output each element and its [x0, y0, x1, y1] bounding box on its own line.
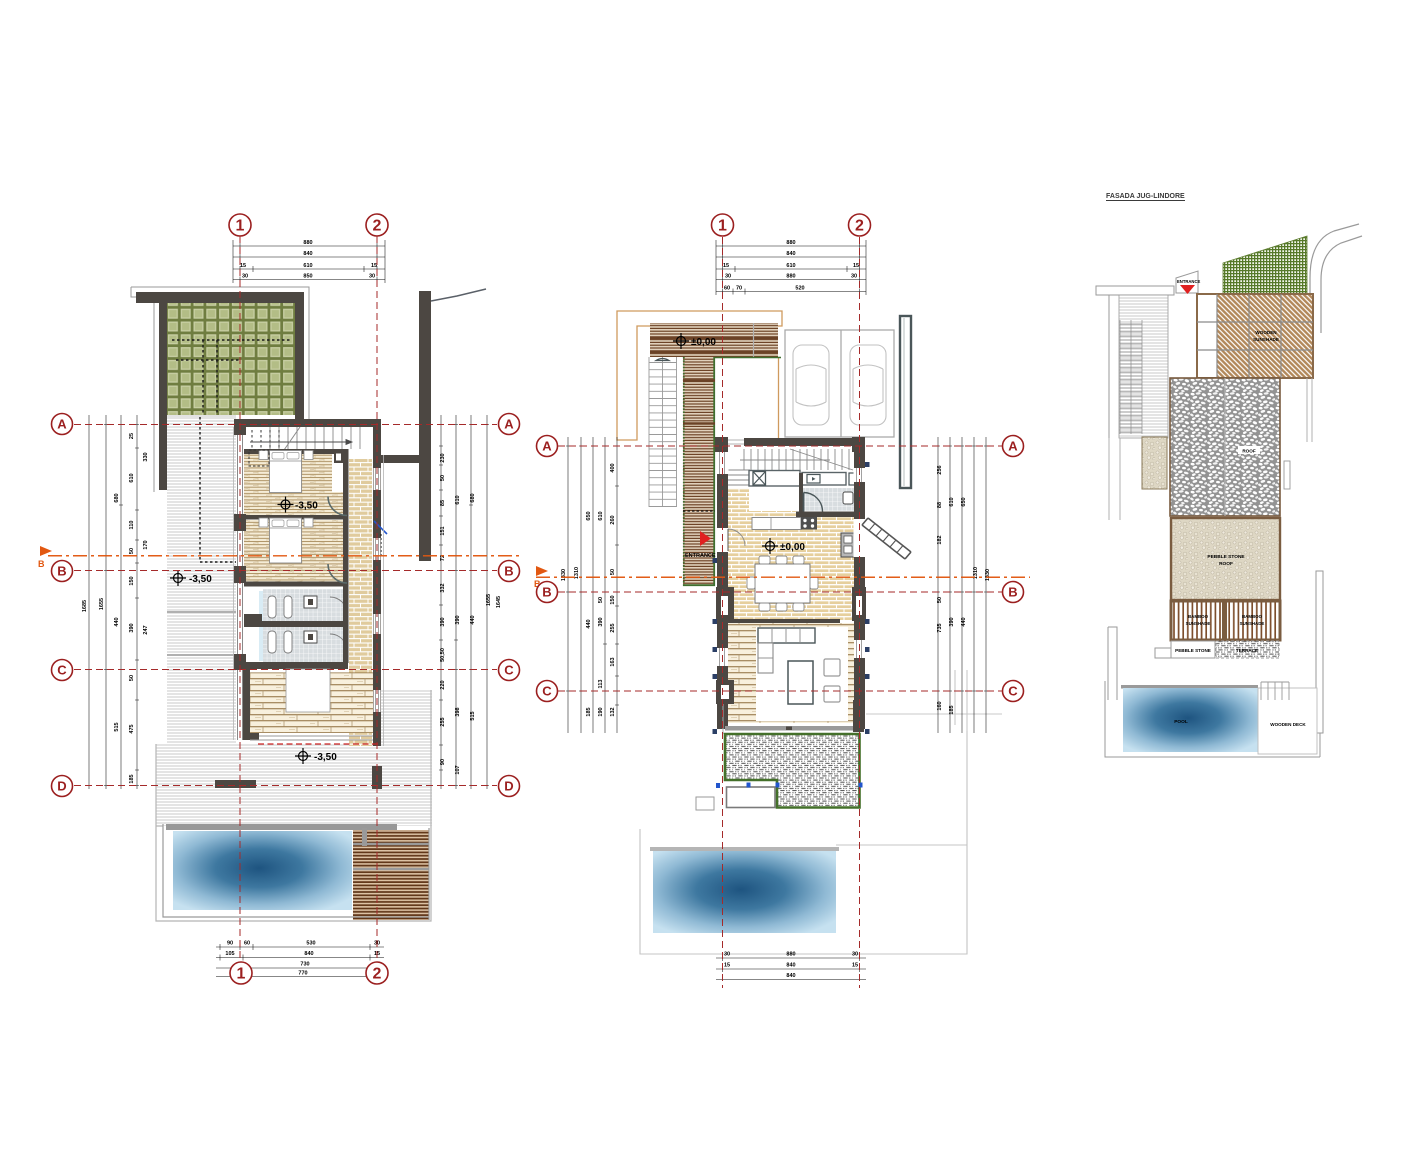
svg-text:1645: 1645 — [496, 596, 502, 608]
svg-text:ROOF: ROOF — [1242, 449, 1255, 454]
svg-text:15: 15 — [723, 263, 729, 269]
svg-text:50,50: 50,50 — [440, 648, 446, 662]
svg-text:256: 256 — [937, 465, 943, 474]
svg-text:610: 610 — [598, 511, 604, 520]
svg-text:770: 770 — [298, 971, 307, 977]
svg-text:WOODEN DECK: WOODEN DECK — [1270, 722, 1306, 727]
svg-text:-3,50: -3,50 — [295, 501, 318, 512]
svg-text:C: C — [542, 684, 552, 699]
svg-text:85: 85 — [440, 500, 446, 506]
svg-text:2: 2 — [855, 218, 864, 235]
svg-text:TERRACE: TERRACE — [1236, 648, 1258, 653]
svg-text:680: 680 — [114, 493, 120, 502]
svg-text:185: 185 — [129, 774, 135, 783]
svg-text:15: 15 — [240, 263, 246, 269]
svg-text:C: C — [504, 663, 514, 678]
svg-text:520: 520 — [795, 286, 804, 292]
svg-text:850: 850 — [303, 274, 312, 280]
svg-text:840: 840 — [786, 963, 795, 969]
svg-text:B: B — [1008, 585, 1017, 600]
svg-text:PEBBLE STONE: PEBBLE STONE — [1207, 554, 1245, 560]
svg-text:50: 50 — [440, 475, 446, 481]
svg-text:260: 260 — [610, 515, 616, 524]
svg-text:440: 440 — [586, 619, 592, 628]
svg-text:30: 30 — [852, 952, 858, 958]
svg-text:610: 610 — [455, 495, 461, 504]
svg-text:185: 185 — [586, 707, 592, 716]
svg-text:A: A — [1008, 439, 1018, 454]
svg-text:88: 88 — [937, 502, 943, 508]
svg-text:163: 163 — [610, 657, 616, 666]
svg-text:680: 680 — [470, 493, 476, 502]
svg-text:C: C — [57, 663, 67, 678]
svg-text:50: 50 — [129, 548, 135, 554]
svg-text:50: 50 — [598, 597, 604, 603]
svg-text:1655: 1655 — [99, 598, 105, 610]
svg-text:475: 475 — [129, 724, 135, 733]
svg-text:1: 1 — [237, 966, 246, 983]
svg-text:ROOF: ROOF — [1219, 561, 1233, 567]
svg-text:WOODEN: WOODEN — [1255, 330, 1277, 335]
svg-text:15: 15 — [724, 963, 730, 969]
svg-text:SUNSHADE: SUNSHADE — [1186, 621, 1211, 626]
svg-text:60: 60 — [244, 941, 250, 947]
svg-text:A: A — [542, 439, 552, 454]
svg-text:C: C — [1008, 684, 1018, 699]
svg-text:230: 230 — [440, 453, 446, 462]
svg-text:880: 880 — [303, 240, 312, 246]
svg-text:610: 610 — [303, 263, 312, 269]
svg-text:15: 15 — [852, 963, 858, 969]
svg-text:B: B — [542, 585, 551, 600]
svg-text:182: 182 — [937, 535, 943, 544]
svg-text:160: 160 — [937, 701, 943, 710]
svg-text:390: 390 — [129, 623, 135, 632]
svg-text:30: 30 — [242, 274, 248, 280]
svg-text:1685: 1685 — [82, 600, 88, 612]
svg-text:25: 25 — [129, 433, 135, 439]
svg-text:247: 247 — [143, 625, 149, 634]
svg-text:255: 255 — [610, 623, 616, 632]
svg-text:1330: 1330 — [561, 569, 567, 581]
svg-text:440: 440 — [961, 617, 967, 626]
svg-text:332: 332 — [440, 583, 446, 592]
svg-text:515: 515 — [470, 711, 476, 720]
svg-text:440: 440 — [114, 617, 120, 626]
svg-text:390: 390 — [455, 615, 461, 624]
svg-text:15: 15 — [853, 263, 859, 269]
svg-text:ENTRANCE: ENTRANCE — [685, 553, 716, 559]
svg-text:113: 113 — [598, 680, 604, 689]
svg-text:-3,50: -3,50 — [189, 574, 212, 585]
svg-text:440: 440 — [470, 615, 476, 624]
svg-text:880: 880 — [786, 952, 795, 958]
svg-text:50: 50 — [937, 597, 943, 603]
svg-text:90: 90 — [440, 759, 446, 765]
svg-text:610: 610 — [129, 473, 135, 482]
svg-text:390: 390 — [440, 617, 446, 626]
svg-text:220: 220 — [440, 680, 446, 689]
svg-text:90: 90 — [227, 941, 233, 947]
svg-text:1330: 1330 — [985, 569, 991, 581]
svg-text:A: A — [504, 417, 514, 432]
svg-text:A: A — [57, 417, 67, 432]
svg-text:530: 530 — [306, 941, 315, 947]
svg-text:B: B — [504, 564, 513, 579]
svg-text:840: 840 — [303, 251, 312, 257]
svg-text:132: 132 — [610, 707, 616, 716]
svg-text:B: B — [38, 559, 45, 569]
svg-text:15: 15 — [371, 263, 377, 269]
svg-text:30: 30 — [369, 274, 375, 280]
svg-text:SUNSHADE: SUNSHADE — [1240, 621, 1265, 626]
svg-text:POOL: POOL — [1174, 719, 1188, 725]
svg-text:515: 515 — [114, 722, 120, 731]
svg-text:1655: 1655 — [486, 594, 492, 606]
svg-text:735: 735 — [937, 623, 943, 632]
svg-text:SUNSHADE: SUNSHADE — [1253, 337, 1279, 342]
svg-text:70: 70 — [736, 286, 742, 292]
svg-text:2: 2 — [373, 218, 382, 235]
svg-text:PEBBLE STONE: PEBBLE STONE — [1175, 648, 1211, 653]
svg-text:2: 2 — [373, 966, 382, 983]
svg-text:30: 30 — [724, 952, 730, 958]
svg-text:±0,00: ±0,00 — [780, 542, 805, 553]
svg-text:880: 880 — [786, 274, 795, 280]
svg-text:190: 190 — [598, 707, 604, 716]
svg-text:840: 840 — [786, 251, 795, 257]
svg-text:FASADA JUG-LINDORE: FASADA JUG-LINDORE — [1106, 193, 1185, 200]
svg-text:BAMBOO: BAMBOO — [1242, 614, 1263, 619]
svg-text:330: 330 — [143, 452, 149, 461]
svg-text:610: 610 — [786, 263, 795, 269]
svg-text:151: 151 — [440, 526, 446, 535]
svg-text:±0,00: ±0,00 — [691, 337, 716, 348]
svg-text:398: 398 — [455, 707, 461, 716]
svg-text:840: 840 — [786, 973, 795, 979]
svg-text:150: 150 — [610, 595, 616, 604]
svg-text:D: D — [504, 779, 513, 794]
svg-text:110: 110 — [129, 521, 135, 530]
svg-text:880: 880 — [786, 240, 795, 246]
svg-text:1: 1 — [236, 218, 245, 235]
svg-text:730: 730 — [300, 962, 309, 968]
svg-text:390: 390 — [598, 617, 604, 626]
svg-text:50: 50 — [129, 675, 135, 681]
svg-text:390: 390 — [949, 617, 955, 626]
svg-text:30: 30 — [725, 274, 731, 280]
svg-text:1: 1 — [718, 218, 727, 235]
svg-text:170: 170 — [143, 540, 149, 549]
svg-text:400: 400 — [610, 463, 616, 472]
svg-text:-3,50: -3,50 — [314, 752, 337, 763]
svg-text:60: 60 — [724, 286, 730, 292]
svg-text:D: D — [57, 779, 66, 794]
svg-text:30: 30 — [851, 274, 857, 280]
svg-text:50: 50 — [610, 569, 616, 575]
svg-text:BAMBOO: BAMBOO — [1188, 614, 1209, 619]
svg-text:840: 840 — [304, 951, 313, 957]
svg-text:185: 185 — [949, 705, 955, 714]
svg-text:B: B — [57, 564, 66, 579]
svg-text:107: 107 — [455, 765, 461, 774]
svg-text:ENTRANCE: ENTRANCE — [1177, 279, 1200, 284]
svg-text:150: 150 — [129, 576, 135, 585]
svg-text:650: 650 — [586, 511, 592, 520]
svg-text:255: 255 — [440, 717, 446, 726]
svg-text:105: 105 — [225, 951, 234, 957]
svg-text:650: 650 — [961, 497, 967, 506]
svg-text:610: 610 — [949, 497, 955, 506]
